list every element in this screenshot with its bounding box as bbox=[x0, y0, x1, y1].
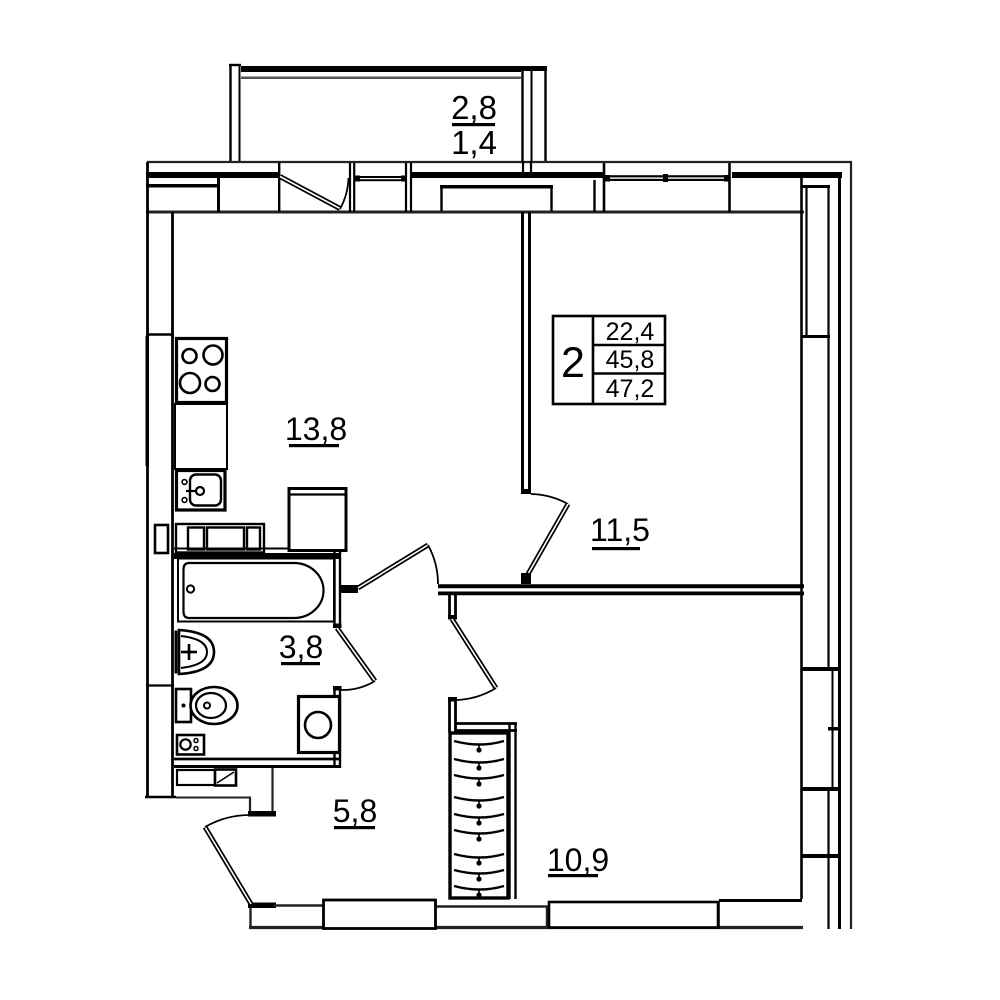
svg-text:11,5: 11,5 bbox=[590, 512, 650, 548]
svg-text:2: 2 bbox=[561, 339, 585, 387]
svg-text:3,8: 3,8 bbox=[279, 629, 323, 665]
svg-text:2,8: 2,8 bbox=[451, 89, 497, 126]
svg-text:1,4: 1,4 bbox=[451, 124, 497, 161]
svg-text:47,2: 47,2 bbox=[606, 375, 655, 403]
svg-text:5,8: 5,8 bbox=[333, 793, 377, 829]
svg-text:10,9: 10,9 bbox=[547, 842, 609, 878]
svg-text:13,8: 13,8 bbox=[285, 411, 347, 447]
svg-text:22,4: 22,4 bbox=[606, 318, 655, 346]
svg-text:45,8: 45,8 bbox=[606, 346, 655, 374]
